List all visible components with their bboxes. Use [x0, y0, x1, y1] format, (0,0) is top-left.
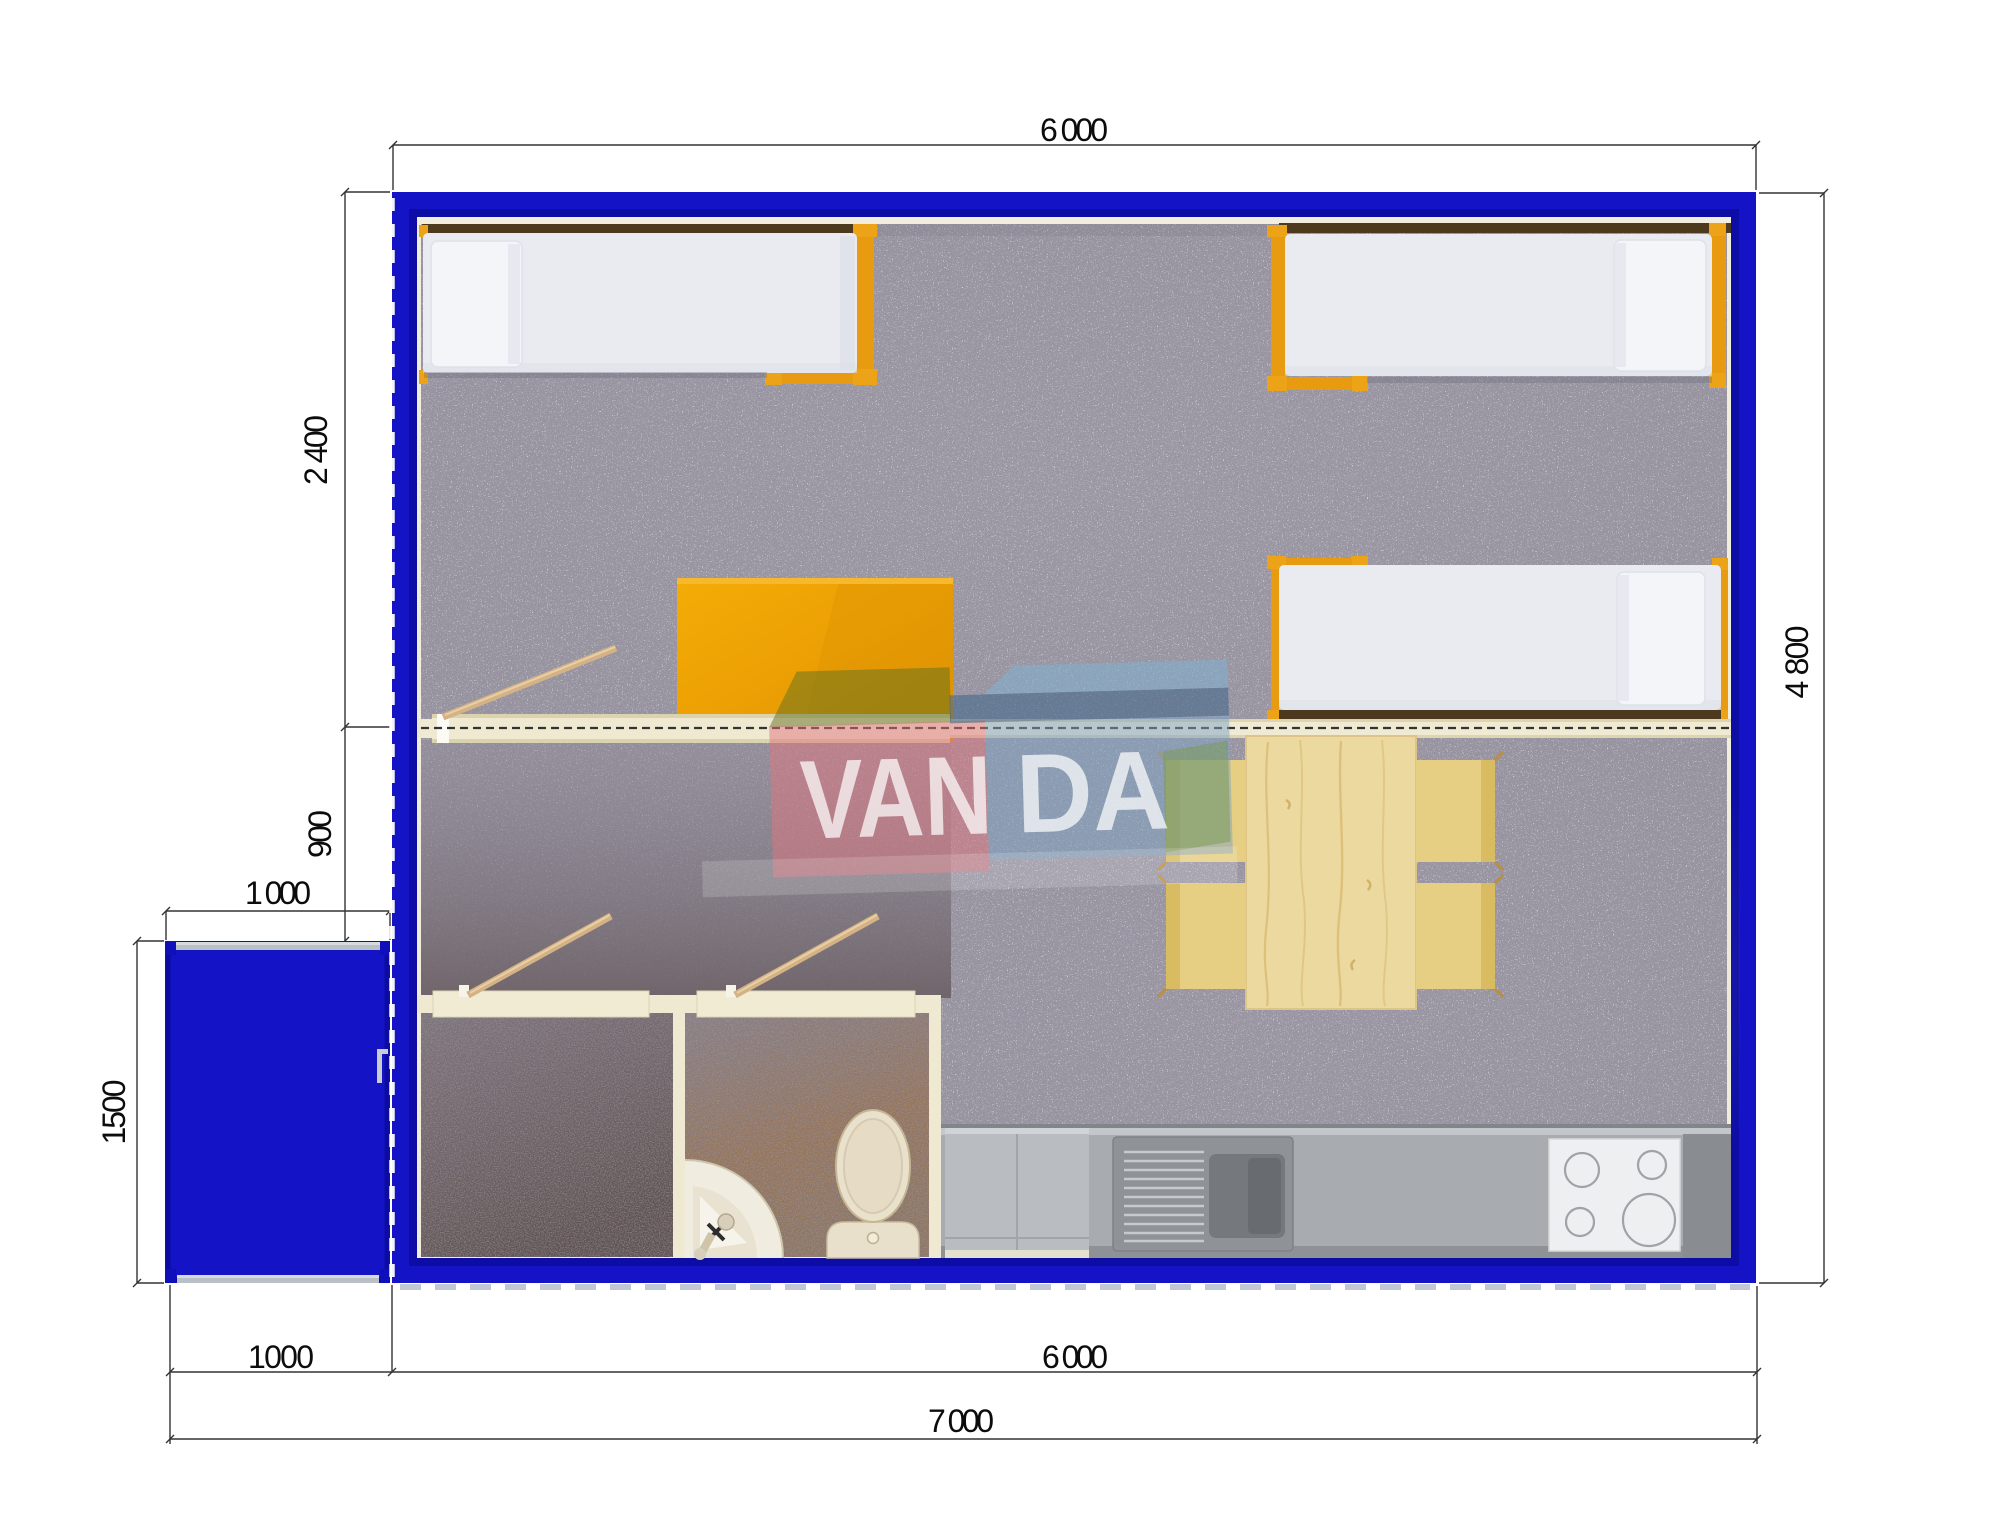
svg-text:6 000: 6 000: [1040, 112, 1108, 148]
svg-text:VAN: VAN: [798, 732, 993, 862]
svg-text:1000: 1000: [248, 1339, 314, 1375]
svg-text:7 000: 7 000: [928, 1403, 994, 1439]
svg-text:6 000: 6 000: [1042, 1339, 1108, 1375]
svg-text:DA: DA: [1014, 727, 1170, 856]
svg-text:4 800: 4 800: [1779, 626, 1815, 699]
svg-text:1500: 1500: [96, 1080, 132, 1145]
svg-text:2 400: 2 400: [298, 415, 334, 485]
svg-text:1 000: 1 000: [245, 875, 311, 911]
svg-text:900: 900: [302, 810, 338, 858]
